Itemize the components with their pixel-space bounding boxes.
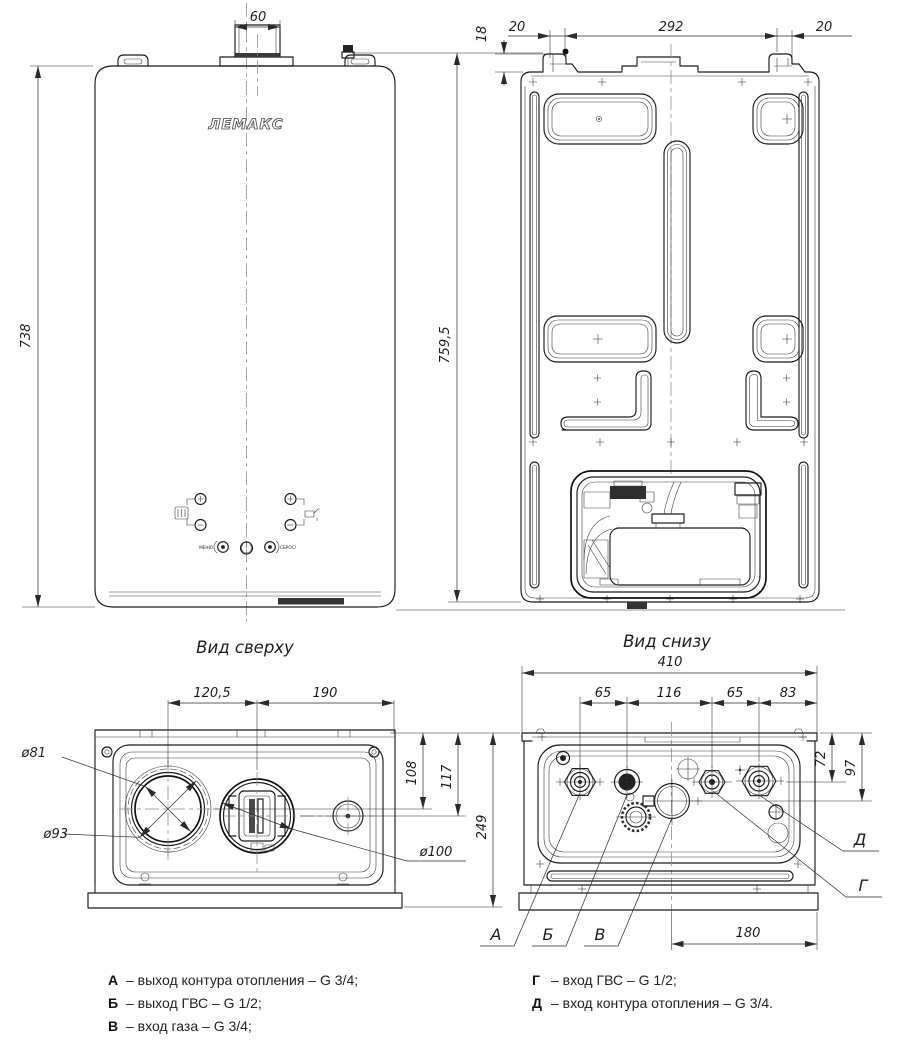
dim-hook-span: 292 [659,20,684,35]
svg-text:В: В [595,925,606,944]
dhw-plus-button[interactable] [285,494,296,505]
svg-text:410: 410 [658,655,683,670]
brand-logo: ЛЕМАКС [208,117,284,133]
panel-screw [557,752,570,765]
dim-hook-left: 20 [509,20,526,35]
dim-depth-fan: 117 [440,764,455,790]
legend-desc: – вход газа – G 3/4; [126,1018,252,1034]
boiler-front-outline [95,66,395,607]
dim-pitch-ab: 65 [595,686,612,701]
bottom-connection-strip [278,598,344,605]
boiler-dimension-drawing: ЛЕМАКС МЕНЮ [0,0,918,1054]
legend-desc: – вход контура отопления – G 3/4. [551,995,773,1011]
dim-overall-height: 759,5 [352,53,543,602]
left-top-tab [118,55,148,66]
svg-text:ø100: ø100 [419,845,453,860]
dim-top-row: 120,5 190 [168,686,394,770]
top-panel-outline [113,745,383,885]
dim-dia-flue-outer: ø93 [43,781,197,842]
dim-depth-flue: 108 [405,761,420,786]
dim-depth-total: 249 [475,815,490,840]
svg-text:Д: Д [853,830,867,849]
svg-text:ø93: ø93 [43,827,69,842]
radiator-icon [175,507,188,519]
top-view: Вид сверху [21,638,521,908]
bottom-center-tab [627,602,647,609]
central-slot [664,141,690,343]
l-channel-right [746,371,798,430]
legend-desc: – выход контура отопления – G 3/4; [126,972,358,988]
legend-key: А [108,972,118,988]
svg-text:180: 180 [736,926,761,941]
dim-depths: 108 117 249 [213,733,520,907]
dim-flue-width: 60 [235,10,280,31]
reset-button[interactable] [265,542,276,553]
bottom-view: Вид снизу 410 65 116 65 83 [480,632,882,950]
control-panel: МЕНЮ СБРОС/ [175,494,320,555]
heating-minus-button[interactable] [195,520,206,531]
dim-fan-to-edge: 190 [313,686,338,701]
stamped-recess-mid-left [544,316,656,362]
svg-text:А: А [490,925,502,944]
dim-fitting-pitches: 65 116 65 83 [580,686,817,770]
pump-assembly [584,481,654,578]
dim-offset-fittings: 72 [814,751,829,768]
right-top-tab [345,55,375,66]
dim-gas-to-edge: 180 [672,912,818,950]
fitting-v-gas-inlet [643,779,702,825]
test-point [676,757,700,781]
legend-key: В [108,1018,118,1034]
top-view-caption: Вид сверху [196,638,294,657]
fitting-a-heating-outlet [556,764,604,800]
stamped-recess-top-left [544,94,656,144]
svg-text:60: 60 [250,10,267,25]
fitting-d-heating-inlet [736,763,784,799]
expansion-tank [610,528,750,585]
aux-hole-2 [768,823,788,843]
dim-pitch-d-edge: 83 [780,686,797,701]
stamped-recess-mid-right [753,316,803,362]
stamped-recess-top-right [753,94,803,144]
valve-block [735,483,761,518]
air-intake-opening [220,772,375,872]
callout-a: А [480,793,580,946]
bottom-view-caption: Вид снизу [623,632,711,651]
heating-plus-button[interactable] [195,494,206,505]
svg-text:18: 18 [475,26,490,43]
side-screw-left [102,747,112,757]
svg-text:Г: Г [859,876,869,895]
technical-drawing-page: ЛЕМАКС МЕНЮ [0,0,918,1054]
back-view: 20 292 20 18 [396,20,852,610]
pipe-union [652,514,684,523]
reset-label: СБРОС/ [280,545,297,550]
bottom-panel-outline [538,745,800,863]
dhw-minus-button[interactable] [285,520,296,531]
svg-text:Б: Б [543,925,554,944]
dim-hook-right: 20 [816,20,833,35]
dim-offset-gas: 97 [844,759,859,776]
front-view: ЛЕМАКС МЕНЮ [19,3,543,622]
legend-key: Б [108,995,118,1011]
hydraulic-window [571,471,766,598]
legend-desc: – вход ГВС – G 1/2; [551,972,677,988]
callout-v: В [584,818,672,946]
legend-key: Г [532,972,540,988]
dim-dia-flue-inner: ø81 [21,746,191,832]
legend-desc: – выход ГВС – G 1/2; [126,995,262,1011]
dim-pitch-gd: 65 [727,686,744,701]
menu-label: МЕНЮ [199,545,213,550]
vent-slot [547,871,793,881]
svg-text:738: 738 [19,324,34,349]
legend-key: Д [532,995,542,1011]
dim-front-height: 738 [19,66,95,607]
legend: А – выход контура отопления – G 3/4; Б –… [108,972,773,1034]
dim-flue-to-fan: 120,5 [193,686,230,701]
svg-text:ø81: ø81 [21,746,47,761]
l-channel-left [561,371,651,430]
dim-pitch-bg: 116 [657,686,682,701]
menu-button[interactable] [218,542,229,553]
hanger-pin [563,49,569,55]
tap-icon [305,509,320,521]
svg-text:759,5: 759,5 [438,326,453,363]
flue-collar-base [220,57,293,66]
